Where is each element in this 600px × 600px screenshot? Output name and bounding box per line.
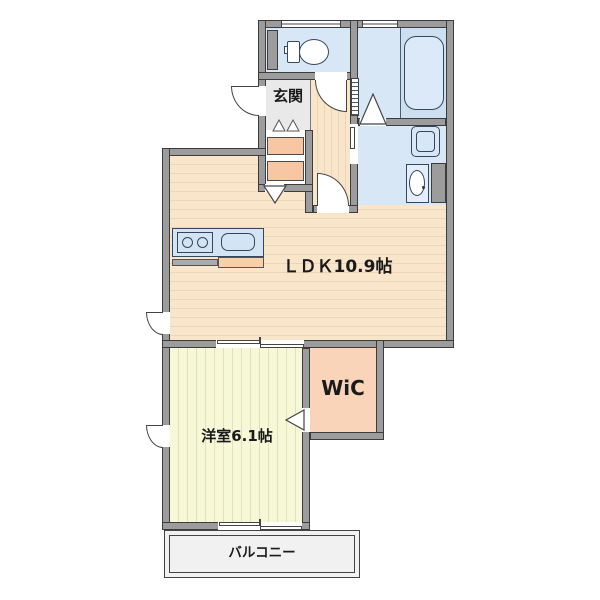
wall-wic-bottom: [310, 432, 384, 440]
shoe-closet-lower: [267, 161, 304, 181]
label-bedroom: 洋室6.1帖: [172, 424, 302, 446]
wall-ldk-top: [162, 148, 266, 156]
wall-wic-right: [376, 340, 384, 440]
toilet-door-opening: [315, 72, 347, 80]
balcony-window-tick: [259, 519, 261, 526]
wall-left-main: [162, 148, 170, 530]
window-bath-top: [362, 21, 398, 27]
shoe-closet-upper: [267, 137, 304, 155]
wall-bedroom-right: [302, 348, 310, 530]
sliding-door-panel-left: [217, 340, 261, 344]
wall-hall-right: [350, 20, 358, 213]
vanity-basin: [409, 170, 425, 196]
wall-ldk-bottom: [162, 340, 454, 348]
bathtub-icon: [404, 36, 444, 110]
casement-window-icon-bedroom: [146, 425, 163, 448]
counter-bar: [172, 259, 218, 266]
floor-plan: 玄関 ＬＤＫ10.9帖 洋室6.1帖 WiC バルコニー: [0, 0, 600, 600]
washing-machine-pan-inner: [416, 131, 435, 152]
casement-opening-ldk: [162, 312, 170, 334]
wall-right: [446, 20, 454, 348]
folding-door-icon-bath: [359, 93, 387, 126]
step-mark-icon: [272, 119, 302, 132]
folding-door-icon-closet: [263, 185, 287, 204]
casement-opening-bedroom: [162, 425, 170, 447]
toilet-icon: [299, 39, 329, 65]
wall-closet-right: [305, 130, 313, 213]
kitchen-sink-icon: [221, 233, 255, 251]
label-ldk: ＬＤＫ10.9帖: [240, 252, 435, 276]
label-balcony: バルコニー: [164, 542, 360, 560]
pipe-space-washroom: [431, 163, 446, 203]
washroom-sliding-door-icon: [350, 127, 355, 149]
window-toilet-top: [281, 21, 341, 27]
stove-burner-right-icon: [197, 237, 208, 248]
balcony-window-panel-left: [219, 522, 261, 526]
hall-ldk-door-opening: [317, 205, 349, 213]
sliding-door-panel-right: [260, 344, 304, 348]
balcony-window-panel-right: [260, 526, 302, 530]
bath-door-rail-icon: [351, 78, 359, 116]
sliding-door-tick: [259, 337, 261, 344]
label-genkan: 玄関: [264, 85, 312, 105]
vanity-faucet-dot: [422, 186, 425, 189]
stove-burner-left-icon: [182, 237, 193, 248]
label-wic: WiC: [310, 374, 376, 402]
casement-window-icon-ldk: [146, 312, 163, 335]
pipe-space-toilet: [267, 30, 278, 70]
entry-door-swing-icon: [231, 86, 259, 116]
